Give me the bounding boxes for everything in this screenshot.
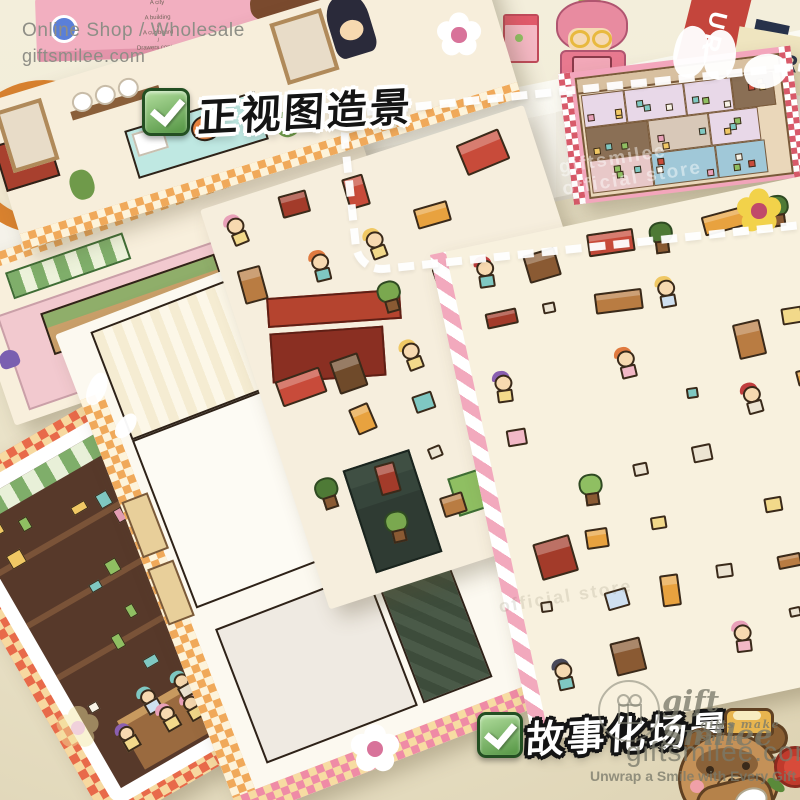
gift-ribbon <box>627 704 629 722</box>
character-body <box>660 293 678 309</box>
sticker-character <box>490 370 514 402</box>
sticker-misc <box>788 606 800 619</box>
site-header-line: giftsmilee.com <box>22 46 145 67</box>
sticker-character <box>220 211 250 246</box>
sticker-misc <box>763 495 783 513</box>
sticker-character <box>396 337 425 372</box>
shop-shelf-item <box>0 523 5 536</box>
shop-shelf-item <box>17 516 33 533</box>
badge-top-label: 正视图造景 <box>197 74 415 143</box>
checkbox-icon <box>142 88 190 136</box>
sticker-character <box>653 275 678 308</box>
sticker-misc <box>686 387 700 399</box>
sticker-character <box>306 247 333 281</box>
shop-header-line: Online Shop / Wholesale <box>22 20 245 42</box>
sticker-furniture <box>795 364 800 387</box>
sticker-character <box>737 381 764 415</box>
glasses-left <box>570 30 590 48</box>
sticker-character <box>549 657 575 691</box>
watermark-tagline: Unwrap a Smile with Every Gift <box>590 768 796 784</box>
sticker-misc <box>715 562 733 578</box>
sticker-misc <box>542 301 557 314</box>
flower-center <box>451 27 466 42</box>
character-body <box>736 638 753 653</box>
shop-shelf-item <box>70 500 88 516</box>
character-body <box>478 274 496 289</box>
character-body <box>557 676 575 692</box>
watermark-site-text: giftsmilee.com <box>626 736 800 768</box>
sticker-furniture <box>236 264 269 304</box>
plant <box>66 167 98 203</box>
sticker-furniture <box>593 288 643 315</box>
sticker-furniture <box>776 551 800 570</box>
character-body <box>314 266 333 282</box>
gift-box <box>618 704 642 724</box>
sticker-misc <box>780 306 800 326</box>
sticker-plant <box>311 475 341 510</box>
shop-shelf-item <box>142 653 160 669</box>
character-body <box>497 388 515 403</box>
sticker-furniture <box>584 527 609 550</box>
sticker-furniture <box>278 189 312 218</box>
flower-faint <box>58 708 98 748</box>
gift-bow <box>629 694 642 707</box>
sticker-furniture <box>659 573 682 607</box>
sticker-furniture <box>532 534 579 581</box>
sticker-misc <box>426 444 443 460</box>
shop-shelf-item <box>124 602 139 619</box>
sticker-misc <box>411 391 437 415</box>
checkbox-icon <box>477 712 523 758</box>
sticker-misc <box>650 515 668 531</box>
character-body <box>746 399 765 416</box>
carton-dot <box>515 34 523 42</box>
sticker-furniture <box>609 636 648 676</box>
scene: NEW A city/A building/A cupboard/Drawers… <box>0 0 800 800</box>
plant-pot <box>585 492 601 507</box>
sticker-misc <box>632 461 650 477</box>
glasses-right <box>592 30 612 48</box>
sticker-furniture <box>485 307 519 329</box>
sticker-misc <box>506 427 529 447</box>
flower-white <box>352 726 398 772</box>
sticker-furniture <box>732 319 768 361</box>
sticker-furniture <box>348 402 378 436</box>
sticker-plant <box>576 472 602 505</box>
character-body <box>619 364 638 380</box>
stamp-gift-icon <box>598 680 660 742</box>
sticker-character <box>611 345 637 379</box>
sticker-character <box>730 619 754 651</box>
red-counter <box>269 326 386 384</box>
sticker-misc <box>691 443 714 464</box>
flower-white <box>438 14 480 56</box>
